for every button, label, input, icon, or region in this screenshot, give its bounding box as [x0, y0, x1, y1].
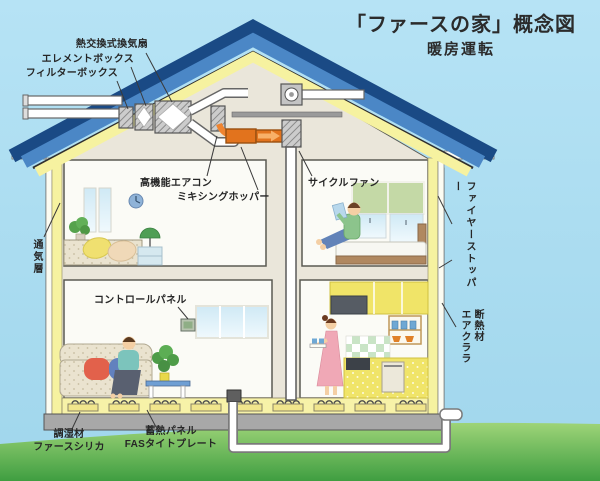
label-cycle-fan: サイクルファン — [308, 177, 380, 190]
label-heat-storage: 蓄熱パネル FASタイトプレート — [114, 425, 228, 451]
label-insulation-material: 断熱材 — [471, 309, 484, 389]
label-high-performance-aircon: 高機能エアコン — [140, 177, 212, 190]
window — [196, 306, 268, 338]
label-heat-storage-product: FASタイトプレート — [114, 438, 228, 451]
label-heat-storage-panel: 蓄熱パネル — [114, 425, 228, 438]
label-humidity-product: ファースシリカ — [16, 441, 122, 454]
element-box-unit — [135, 104, 153, 130]
label-filter-box: フィルターボックス — [8, 67, 118, 80]
label-insulation-product: エアクララ — [458, 309, 471, 389]
label-humidity-material: 調湿材 — [16, 428, 122, 441]
diagram-title: 「ファースの家」概念図 — [335, 8, 587, 37]
diagram-subtitle: 暖房運転 — [335, 38, 587, 59]
label-element-box: エレメントボックス — [22, 53, 134, 66]
window — [99, 188, 111, 232]
orange-duct — [256, 130, 283, 142]
ceiling-duct-bar — [232, 112, 342, 117]
tile-backsplash — [346, 336, 390, 360]
label-insulation: 断熱材 エアクララ — [458, 309, 484, 389]
dish-shelf — [389, 316, 421, 344]
vertical-duct — [286, 147, 296, 400]
label-humidity: 調湿材 ファースシリカ — [16, 428, 122, 454]
label-fire-stopper: ファイヤーストッパー — [450, 181, 476, 295]
lower-cabinets — [344, 358, 428, 398]
control-panel-device — [181, 319, 195, 331]
concept-diagram: 「ファースの家」概念図 暖房運転 熱交換式換気扇 エレメントボックス フィルター… — [0, 0, 600, 481]
filter-box-unit — [119, 107, 133, 128]
label-heat-exchange-fan: 熱交換式換気扇 — [36, 38, 148, 51]
wall-clock-icon — [129, 194, 143, 208]
cycle-fan-unit — [282, 120, 301, 147]
label-mixing-hopper: ミキシングホッパー — [177, 191, 270, 204]
heat-exchanger-unit — [155, 101, 191, 133]
label-control-panel: コントロールパネル — [94, 294, 187, 307]
label-ventilation-layer: 通気層 — [30, 239, 43, 287]
lamp — [138, 228, 162, 265]
range-hood — [331, 296, 367, 314]
